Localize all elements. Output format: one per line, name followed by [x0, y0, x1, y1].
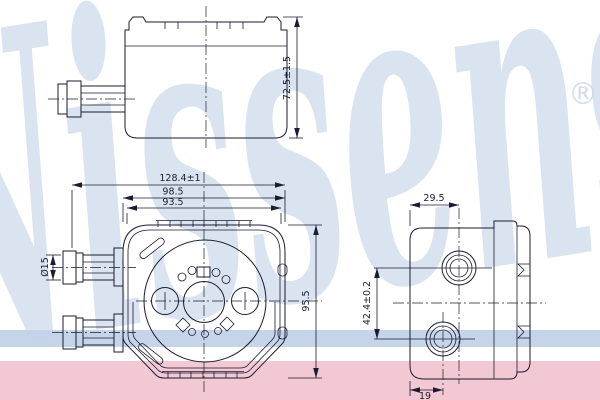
dim-top-height-label: 72.5±1.5: [282, 56, 293, 100]
dim-front-width-outer-label: 98.5: [162, 187, 183, 198]
dim-side-port-top-offset-label: 29.5: [423, 193, 444, 204]
watermark-brand: Nissens ®: [0, 0, 600, 400]
dim-side-port-bottom-offset-label: 19: [419, 391, 431, 400]
dim-side-port-spacing-label: 42.4±0.2: [362, 281, 373, 325]
brand-script-text: Nissens: [0, 0, 600, 400]
dim-pipe-diameter-label: Ø15: [40, 257, 51, 277]
registered-trademark-icon: ®: [568, 77, 598, 112]
dim-front-height-label: 95.5: [301, 290, 312, 311]
dim-front-width-inner-label: 93.5: [162, 197, 183, 208]
dim-front-overall-width-label: 128.4±1: [159, 173, 200, 184]
technical-drawing-oil-cooler: Nissens ® 72.5±1.5: [0, 0, 600, 400]
